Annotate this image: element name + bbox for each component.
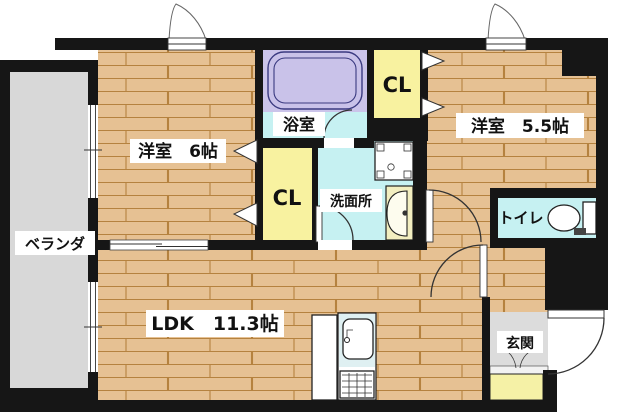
room-label-bedroom6: 洋室 6帖 (138, 141, 218, 162)
wall-top-left (55, 38, 168, 50)
wall-top-mid (206, 38, 486, 50)
casement-window-swing-right (488, 4, 525, 40)
wall-veranda-top (0, 60, 98, 72)
bedroom55-door-leaf (426, 190, 433, 242)
vanity-faucet (402, 210, 407, 215)
wall-left (0, 60, 10, 412)
front-door-leaf (548, 310, 604, 318)
room-label-bath: 浴室 (283, 115, 315, 134)
room-label-closet-upper: CL (383, 73, 412, 97)
bathtub (268, 52, 362, 109)
room-label-closet-lower: CL (273, 186, 302, 210)
casement-window-swing-left (169, 4, 206, 40)
wall-below-closet-upper (367, 118, 428, 141)
room-label-bedroom55: 洋室 5.5帖 (471, 116, 569, 137)
kitchen-sink (343, 319, 373, 359)
ldk-door-leaf (480, 245, 487, 297)
wall-corner-se (543, 370, 557, 412)
floor-plan-drawing: 洋室 6帖 洋室 5.5帖 LDK 11.3帖 浴室 洗面所 トイレ 玄関 ベラ… (0, 0, 617, 418)
shoe-cabinet (490, 374, 543, 400)
wall-washroom-south-b (352, 240, 427, 250)
window-veranda-1 (88, 105, 98, 198)
wall-entrance-west (482, 297, 490, 412)
room-label-washroom: 洗面所 (330, 193, 372, 210)
veranda-floor (10, 72, 88, 388)
bathroom-doorway (324, 138, 354, 148)
refrigerator-space (312, 315, 337, 400)
room-label-veranda: ベランダ (25, 235, 85, 253)
room-label-ldk: LDK 11.3帖 (151, 312, 278, 335)
wall-veranda-inner-1 (88, 62, 98, 105)
wall-block-se (545, 238, 608, 310)
washroom-doorway (318, 240, 352, 250)
sliding-door-bedroom6 (110, 240, 208, 250)
room-label-entrance: 玄関 (506, 335, 534, 352)
room-label-toilet: トイレ (498, 209, 543, 227)
wall-bottom (55, 400, 557, 412)
wall-veranda-inner-3 (88, 372, 98, 402)
wall-washroom-south-a (255, 240, 318, 250)
toilet-bowl (548, 205, 580, 231)
washing-machine-pan (375, 142, 413, 180)
toilet-control (574, 228, 586, 235)
floor-plan: 洋室 6帖 洋室 5.5帖 LDK 11.3帖 浴室 洗面所 トイレ 玄関 ベラ… (0, 0, 617, 418)
wall-ldk-divider-b (208, 240, 255, 250)
entrance-step (490, 366, 548, 374)
wall-toilet-north (490, 188, 608, 198)
wall-washroom-east (413, 141, 427, 250)
